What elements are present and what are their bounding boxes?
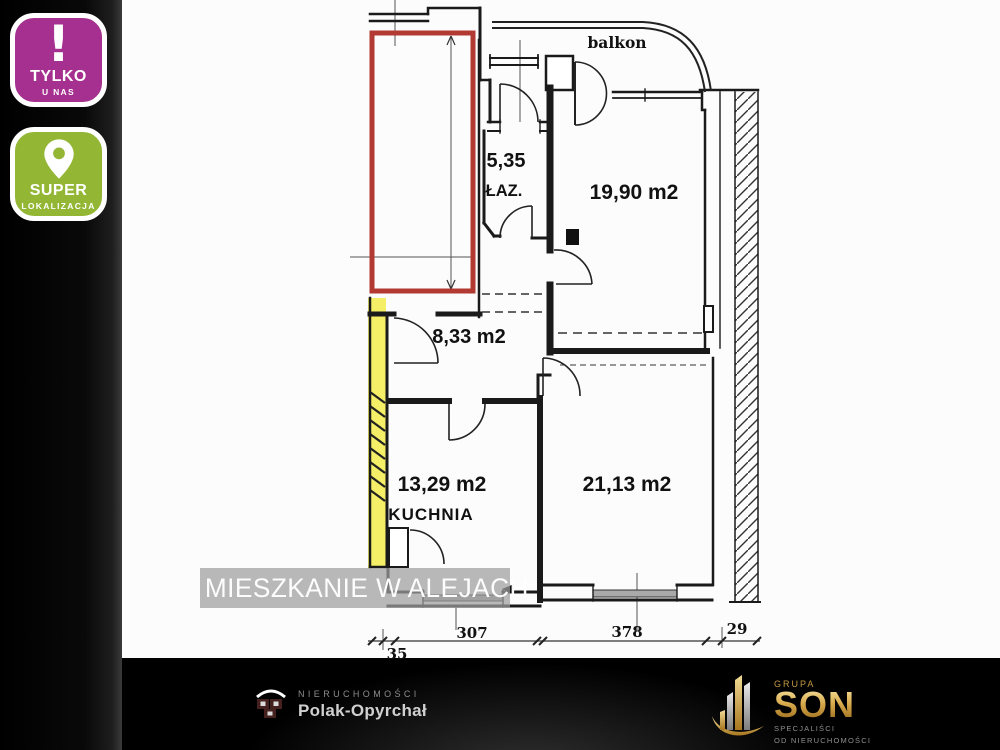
badge-tylko-line1: TYLKO (30, 68, 87, 86)
agency-logo: NIERUCHOMOŚCI Polak-Opyrchał (254, 684, 427, 721)
floor-plan: balkon 5,35 ŁAZ. 19,90 m2 8,33 m2 13,29 … (0, 0, 1000, 750)
badge-super-lokalizacja: SUPER LOKALIZACJA (10, 127, 107, 221)
son-sub2-label: OD NIERUCHOMOŚCI (774, 735, 871, 747)
dim-378: 378 (611, 623, 642, 641)
badge-tylko-u-nas: ! TYLKO U NAS (10, 13, 107, 107)
room-bottom-area-label: 21,13 m2 (583, 473, 672, 496)
watermark-bar: MIESZKANIE W ALEJACH (200, 568, 510, 608)
badge-super-line2: LOKALIZACJA (21, 201, 95, 211)
exclamation-icon: ! (47, 21, 70, 67)
badge-tylko-line2: U NAS (42, 87, 75, 97)
bathroom-area-label: 5,35 (487, 150, 526, 172)
skyscraper-icon (710, 668, 766, 738)
son-name-label: SON (774, 689, 871, 721)
bathroom-name-label: ŁAZ. (486, 182, 523, 200)
balcony-label: balkon (587, 33, 646, 52)
location-pin-icon (42, 138, 76, 180)
agency-type-label: NIERUCHOMOŚCI (298, 689, 427, 699)
agency-name-label: Polak-Opyrchał (298, 701, 427, 721)
dim-29: 29 (727, 620, 748, 638)
listing-image: balkon 5,35 ŁAZ. 19,90 m2 8,33 m2 13,29 … (0, 0, 1000, 750)
hallway-area-label: 8,33 m2 (432, 326, 505, 348)
agency-house-icon (254, 684, 288, 720)
badge-super-line1: SUPER (30, 182, 88, 200)
kitchen-name-label: KUCHNIA (388, 505, 473, 524)
watermark-text: MIESZKANIE W ALEJACH (200, 573, 529, 604)
kitchen-area-label: 13,29 m2 (398, 473, 487, 496)
grupa-son-logo: GRUPA SON SPECJALIŚCI OD NIERUCHOMOŚCI (710, 668, 871, 747)
son-sub1-label: SPECJALIŚCI (774, 723, 871, 735)
dim-35: 35 (387, 645, 408, 663)
plan-paper (122, 0, 1000, 658)
room-top-area-label: 19,90 m2 (590, 181, 679, 204)
dim-307: 307 (456, 624, 487, 642)
